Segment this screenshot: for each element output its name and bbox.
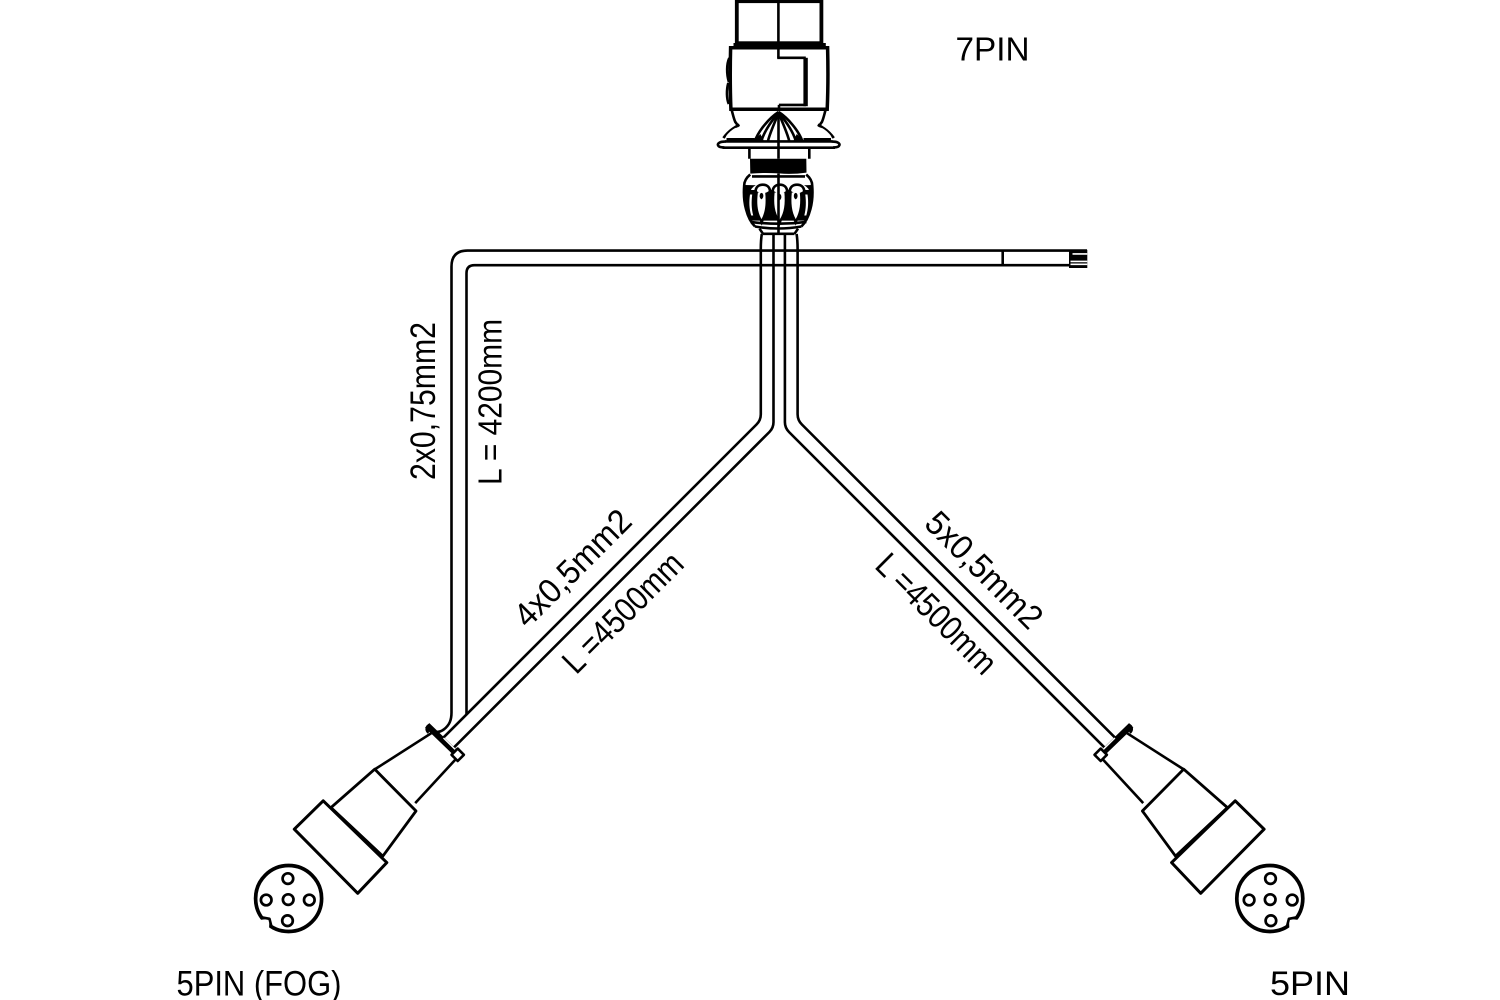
svg-text:2x0,75mm2: 2x0,75mm2 xyxy=(404,322,443,480)
svg-text:5PIN (FOG): 5PIN (FOG) xyxy=(177,965,342,1000)
svg-text:7PIN: 7PIN xyxy=(956,31,1030,68)
svg-text:L = 4200mm: L = 4200mm xyxy=(472,319,509,485)
svg-text:5PIN: 5PIN xyxy=(1270,965,1350,1000)
